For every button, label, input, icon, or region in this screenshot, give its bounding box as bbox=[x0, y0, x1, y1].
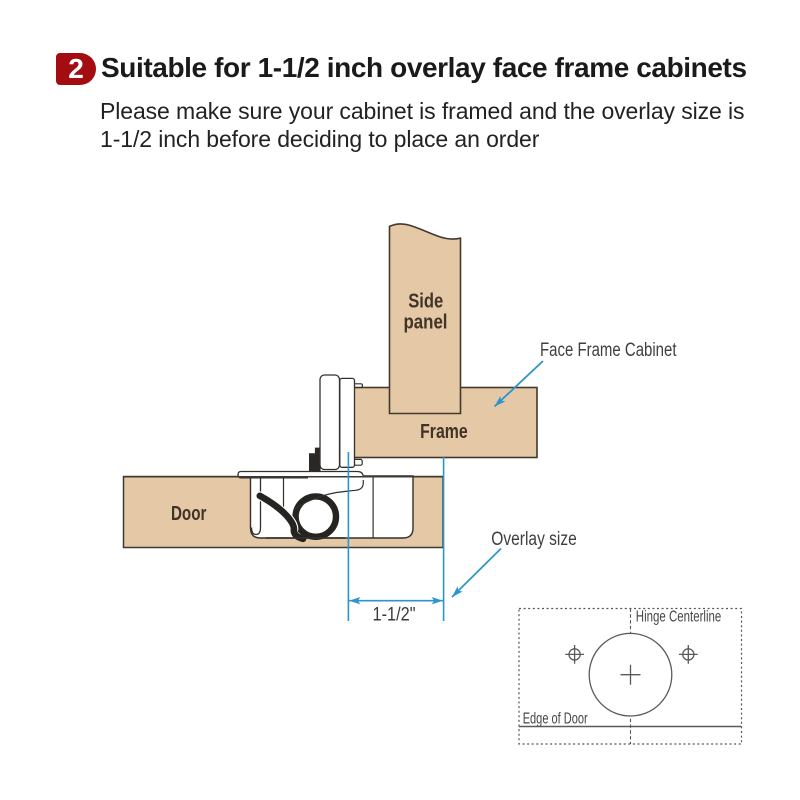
svg-text:Side: Side bbox=[408, 291, 443, 313]
svg-text:Face Frame Cabinet: Face Frame Cabinet bbox=[540, 340, 677, 361]
svg-text:1-1/2": 1-1/2" bbox=[373, 605, 416, 626]
svg-text:Hinge Centerline: Hinge Centerline bbox=[636, 609, 722, 626]
svg-text:Door: Door bbox=[171, 503, 207, 525]
svg-text:Overlay size: Overlay size bbox=[491, 529, 577, 550]
svg-text:Edge of Door: Edge of Door bbox=[523, 711, 588, 728]
svg-text:Frame: Frame bbox=[420, 421, 468, 443]
svg-text:panel: panel bbox=[404, 312, 448, 334]
